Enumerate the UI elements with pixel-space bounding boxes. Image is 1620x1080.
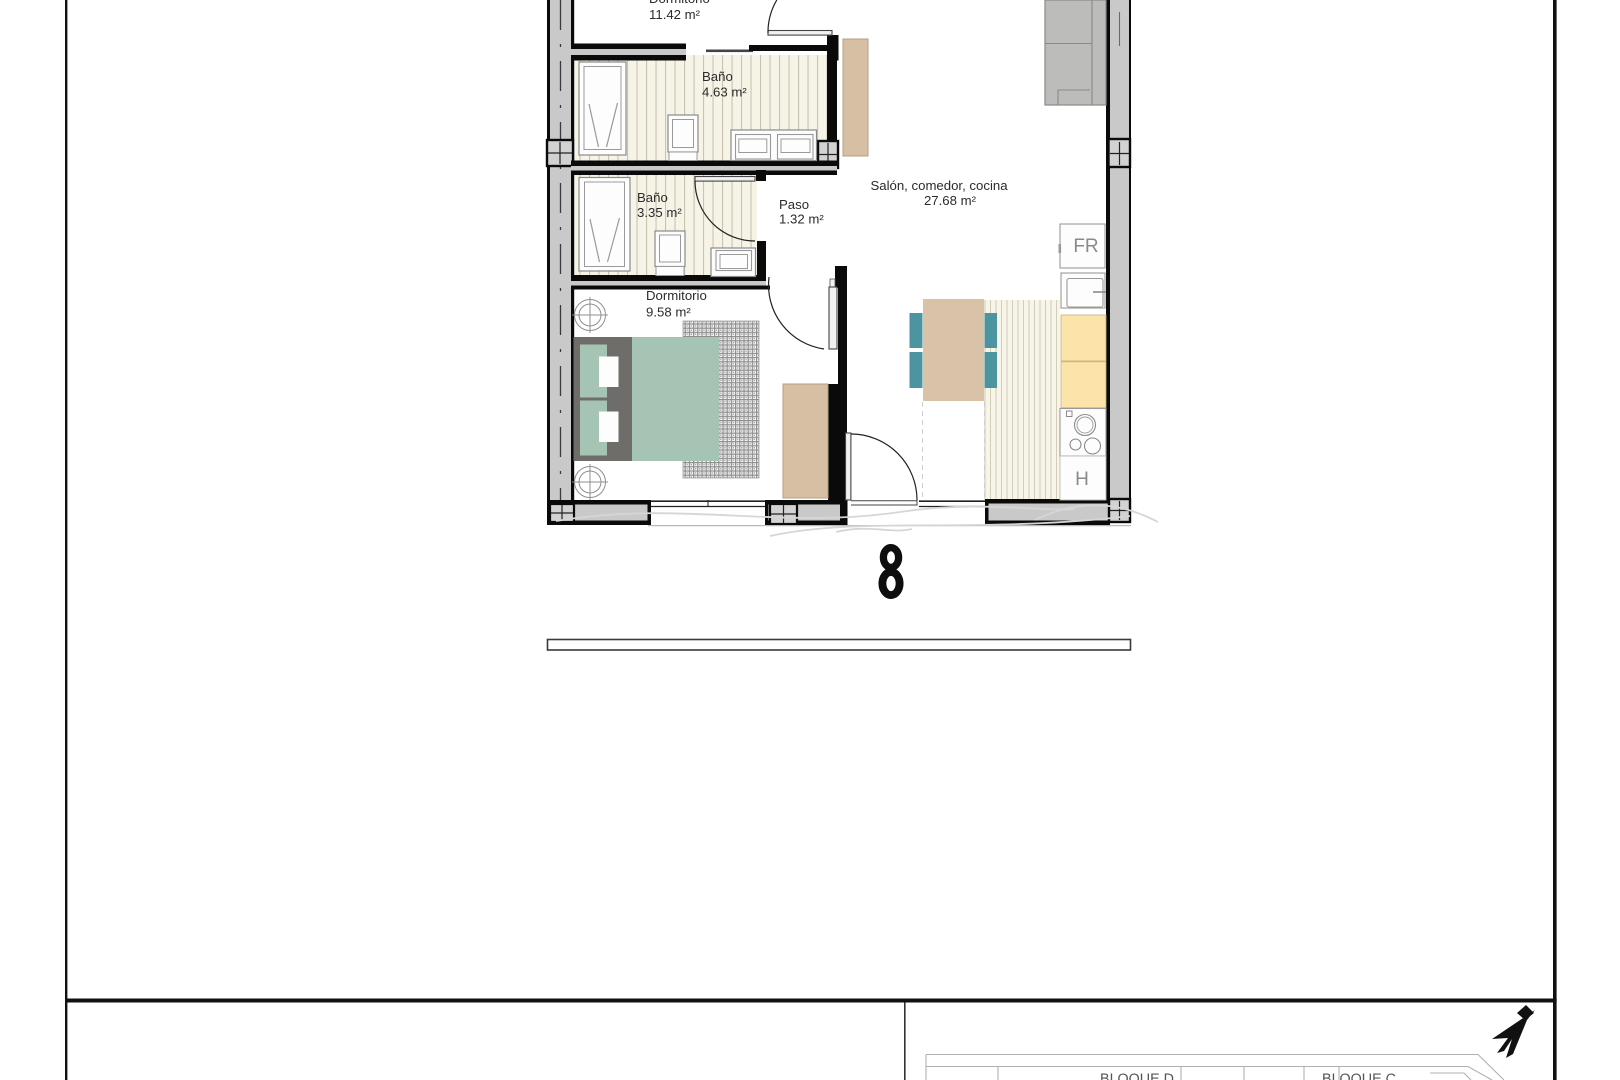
svg-text:9.58 m²: 9.58 m² — [646, 305, 691, 320]
svg-text:27.68 m²: 27.68 m² — [924, 193, 977, 208]
svg-text:11.42 m²: 11.42 m² — [649, 7, 701, 22]
svg-text:H: H — [1075, 469, 1089, 490]
svg-text:Dormitorio: Dormitorio — [646, 288, 707, 303]
svg-text:BLOQUE C: BLOQUE C — [1322, 1072, 1396, 1080]
svg-text:Salón, comedor, cocina: Salón, comedor, cocina — [870, 178, 1008, 193]
svg-text:4.63 m²: 4.63 m² — [702, 85, 747, 100]
svg-text:FR: FR — [1073, 236, 1098, 257]
svg-text:BLOQUE D: BLOQUE D — [1100, 1072, 1174, 1080]
svg-text:Dormitorio: Dormitorio — [649, 0, 710, 6]
svg-text:Baño: Baño — [637, 190, 668, 205]
svg-text:1.32 m²: 1.32 m² — [779, 212, 824, 227]
svg-text:3.35 m²: 3.35 m² — [637, 205, 682, 220]
svg-text:Paso: Paso — [779, 197, 809, 212]
svg-text:Baño: Baño — [702, 69, 733, 84]
